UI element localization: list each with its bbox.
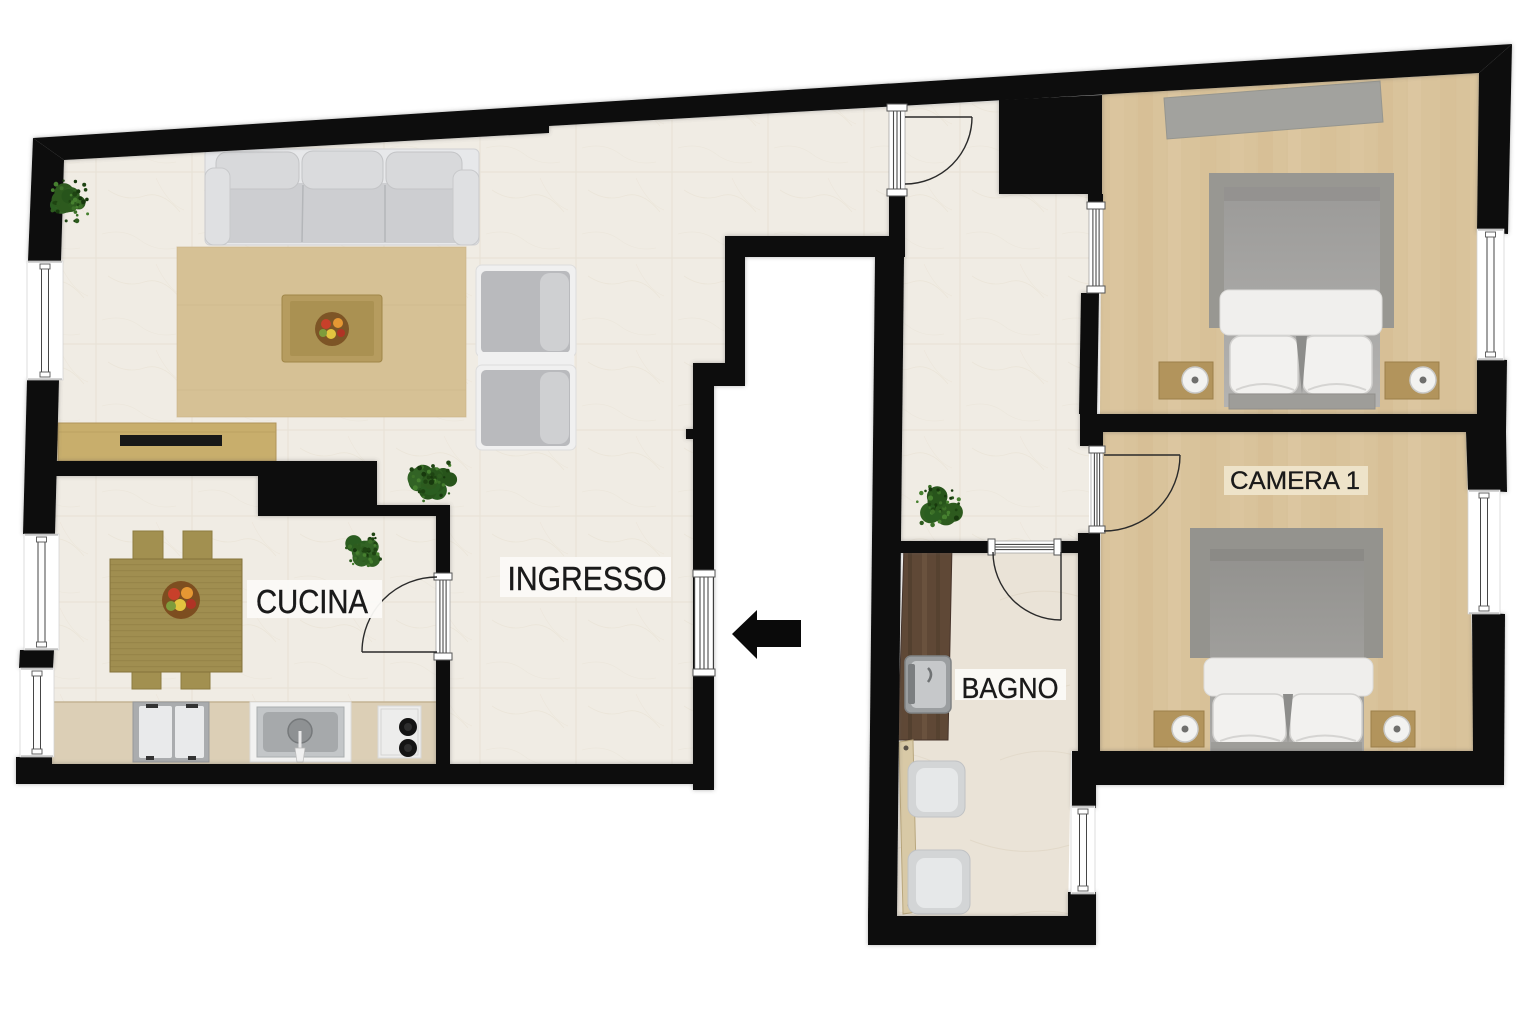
svg-text:BAGNO: BAGNO bbox=[962, 673, 1059, 705]
svg-text:CUCINA: CUCINA bbox=[256, 583, 368, 620]
svg-text:CAMERA 1: CAMERA 1 bbox=[1230, 467, 1360, 495]
svg-text:INGRESSO: INGRESSO bbox=[508, 560, 667, 597]
